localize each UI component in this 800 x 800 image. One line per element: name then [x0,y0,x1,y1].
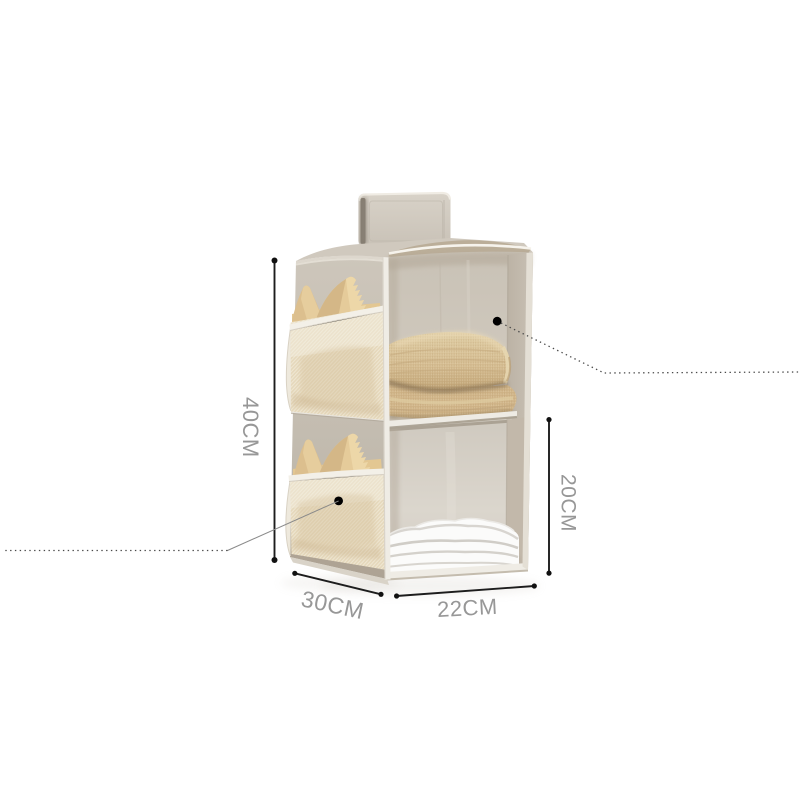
svg-text:40CM: 40CM [238,397,263,458]
svg-text:22CM: 22CM [436,594,498,622]
svg-text:20CM: 20CM [557,474,580,532]
